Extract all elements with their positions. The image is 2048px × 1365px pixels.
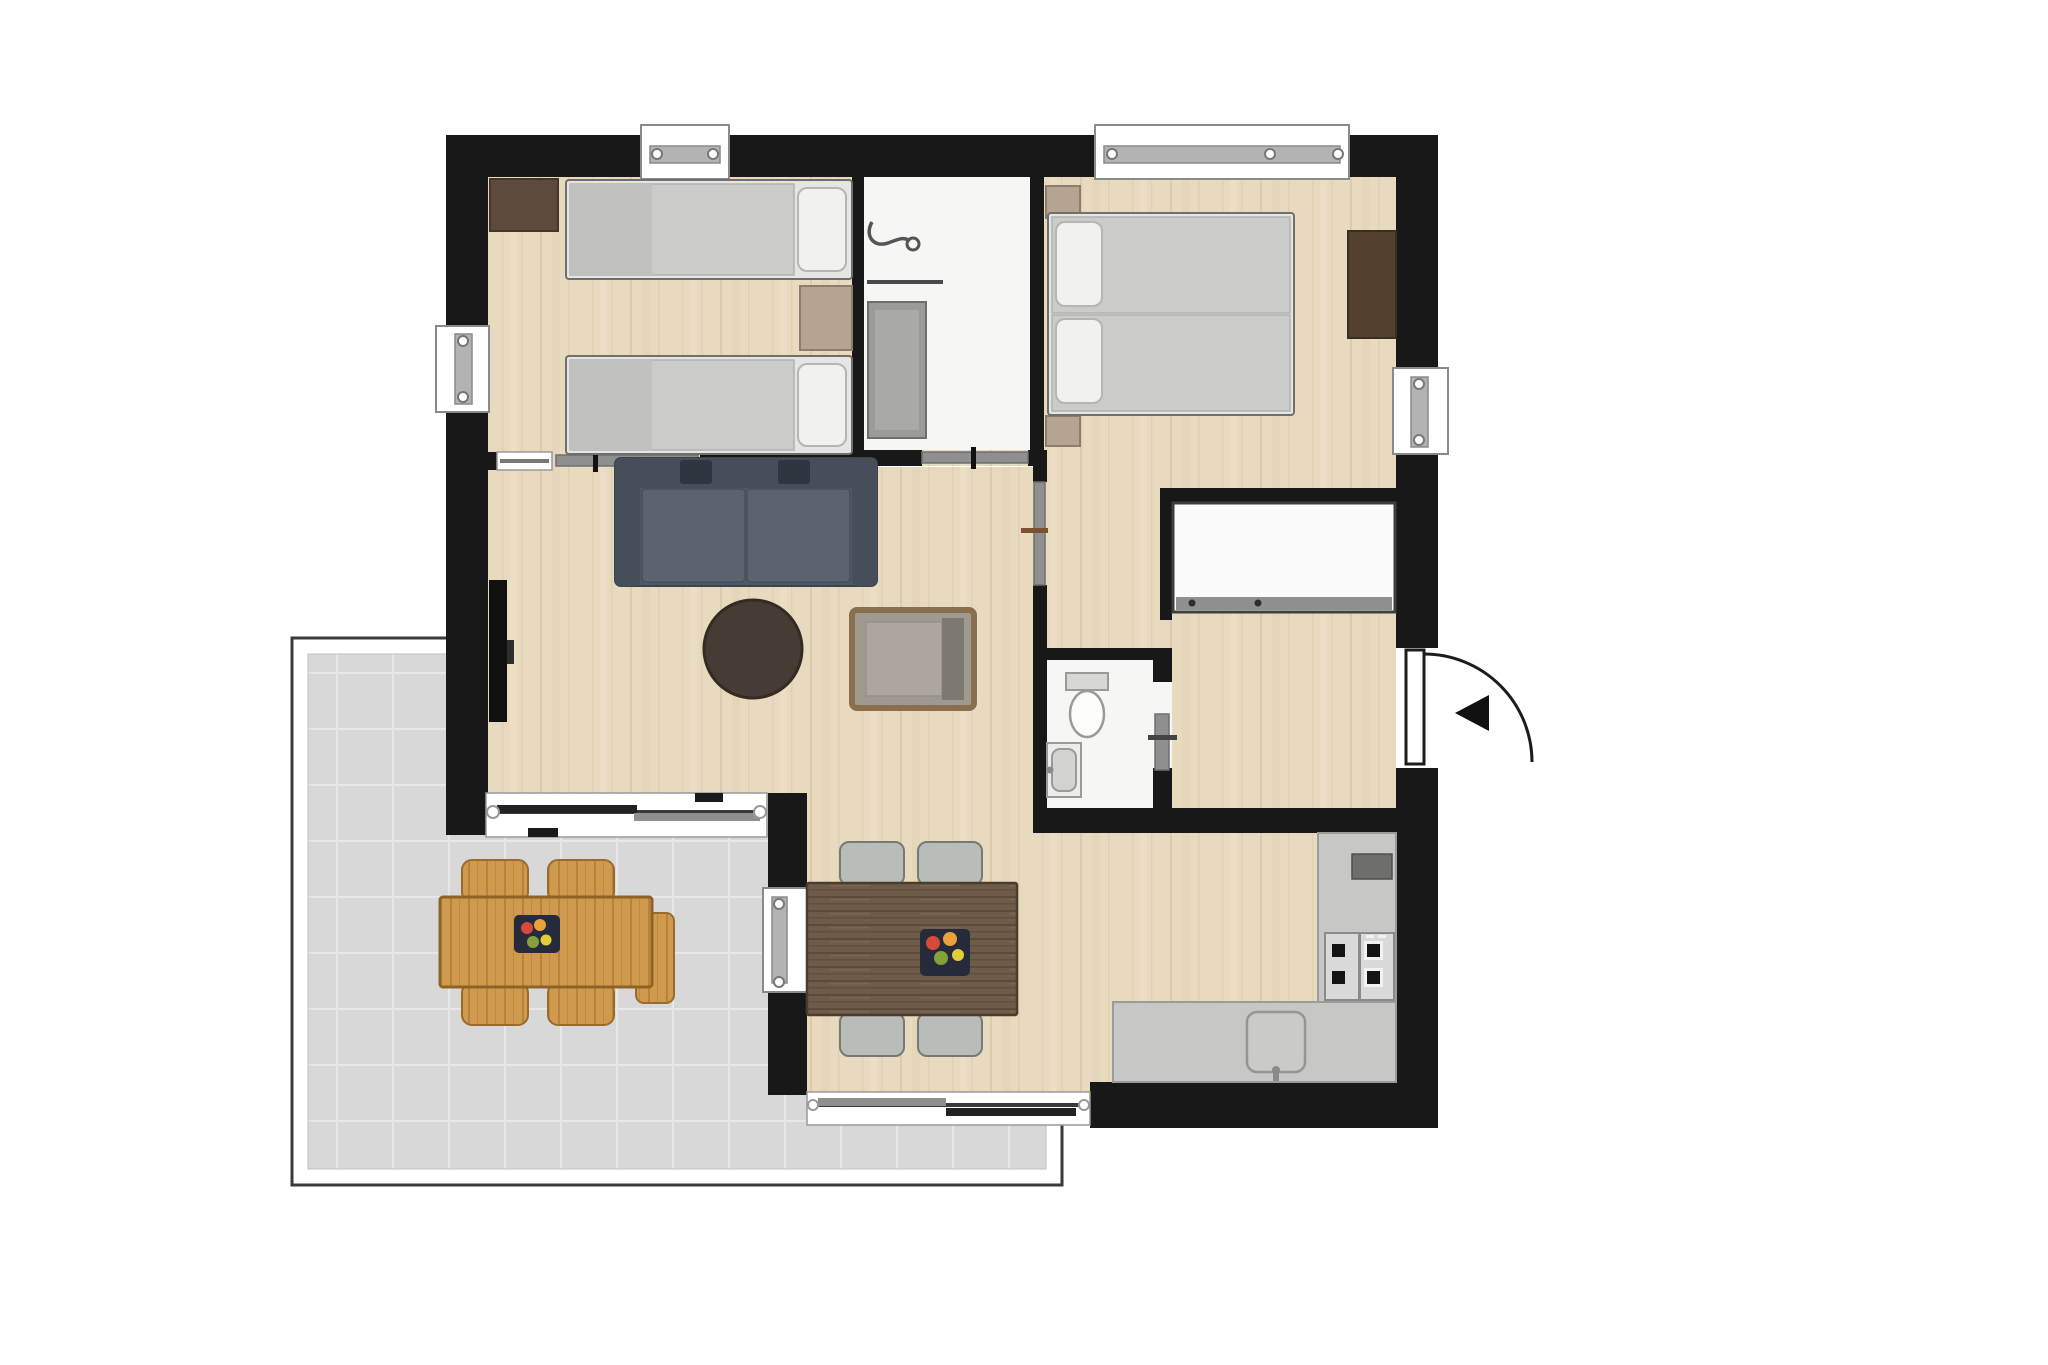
wall-storage-east [1030,177,1044,450]
stove-knob [1366,935,1374,938]
wall-corridor-west [1033,450,1047,482]
bathroom-sliding-door [1155,714,1169,770]
fruit [934,951,948,965]
dining-slider-panel [946,1108,1076,1116]
tv-mount [507,640,514,664]
floor-corridor [1044,450,1160,648]
wall-right [1396,135,1438,368]
slider-end [1079,1100,1089,1110]
single-bed-pillow [798,188,846,271]
entrance-arrow [1455,695,1489,731]
stove-divider [1358,933,1361,1000]
toilet-bowl [1070,691,1104,737]
fruit [926,936,940,950]
sofa-pillow [680,460,712,484]
stove-knob [1378,935,1386,938]
fruit [943,932,957,946]
wall-left [446,412,488,835]
outdoor-chair [548,983,614,1025]
nightstand [800,286,852,350]
fruit [952,949,964,961]
floor-hall [1160,600,1396,808]
wall-corridor-west [1033,585,1047,648]
window-handle [652,149,662,159]
door-handle-tick [971,447,976,469]
slider-end [487,806,499,818]
door-handle-tick [1021,528,1048,533]
dining-chair [840,842,904,885]
dining-slider-panel [818,1098,946,1106]
kitchen-sink-tap [1273,1072,1279,1081]
wall-right [1396,768,1438,1128]
single-bed-pillow [798,364,846,446]
dining-table [807,883,1017,1015]
stove-burner [1332,944,1345,957]
fruit [541,935,552,946]
window-handle [458,336,468,346]
slider-end [808,1100,818,1110]
stove-burner [1367,944,1380,957]
wall-bathroom-west [1033,648,1047,833]
wall-bathroom-north [1047,648,1172,660]
window-handle [458,392,468,402]
sofa-cushion [747,489,850,582]
window-handle [1414,435,1424,445]
stove-burner [1367,971,1380,984]
window-handle [774,899,784,909]
wall-right [1396,454,1438,648]
wall-bathroom-east [1153,768,1172,813]
hall-closet [1173,503,1395,612]
door-handle-tick [1148,735,1177,740]
wall-bedroom2-south [1160,488,1396,503]
sofa-armrest [852,458,877,586]
double-bed-pillow [1056,222,1102,306]
fruit [521,922,533,934]
window-handle [1414,379,1424,389]
bathroom-sink-basin [1052,749,1076,791]
slider-handle [528,828,558,837]
window-handle [774,977,784,987]
double-bed-pillow [1056,319,1102,403]
wall-storage-west [852,177,864,466]
corridor-sliding-door [1034,482,1045,585]
single-bed-blanket [570,184,652,275]
wall-terrace-column [768,990,807,1095]
wall-terrace-column [768,793,807,890]
bedroom1-door-pocket-line [500,459,549,463]
sofa-armrest [615,458,640,586]
storage-cabinet-door [875,310,919,430]
wall-left [446,135,488,326]
kitchen-appliance [1352,854,1392,879]
outdoor-chair [462,983,528,1025]
closet-handle [1189,600,1196,607]
single-bed-blanket [570,360,652,450]
window-glass [1104,146,1340,163]
hall-closet-track [1176,597,1392,610]
kitchen-sink [1247,1012,1305,1072]
entrance-door-leaf [1406,650,1424,764]
sofa-cushion [642,489,745,582]
sofa-back [638,458,854,488]
wall-bathroom-east [1153,660,1172,682]
bathroom-sink-tap [1047,767,1054,774]
fruit [527,936,539,948]
dining-chair [918,842,982,885]
coffee-table [704,600,802,698]
floorplan-drawing [0,0,2048,1365]
window-handle [708,149,718,159]
wall-closet-west [1160,503,1172,620]
nightstand [1046,416,1080,446]
dresser-bedroom2 [1348,231,1396,338]
toilet-tank [1066,673,1108,690]
wall-hall-south [1045,808,1396,833]
wall-bottom [1090,1082,1438,1128]
terrace-slider-panel [497,805,637,813]
wall-top [729,135,1095,177]
terrace-slider-panel [634,813,760,821]
dining-chair [918,1013,982,1056]
dining-chair [840,1013,904,1056]
slider-handle [695,793,723,802]
window-handle [1265,149,1275,159]
wardrobe-bedroom1 [490,179,558,231]
tv-screen [489,580,507,722]
sofa-pillow [778,460,810,484]
armchair-seat [866,622,942,696]
floorplan-page [0,0,2048,1365]
coat-rod [867,280,943,284]
fruit [534,919,546,931]
window-handle [1107,149,1117,159]
slider-end [754,806,766,818]
closet-handle [1255,600,1262,607]
armchair-back [942,618,964,700]
stove-burner [1332,971,1345,984]
window-handle [1333,149,1343,159]
